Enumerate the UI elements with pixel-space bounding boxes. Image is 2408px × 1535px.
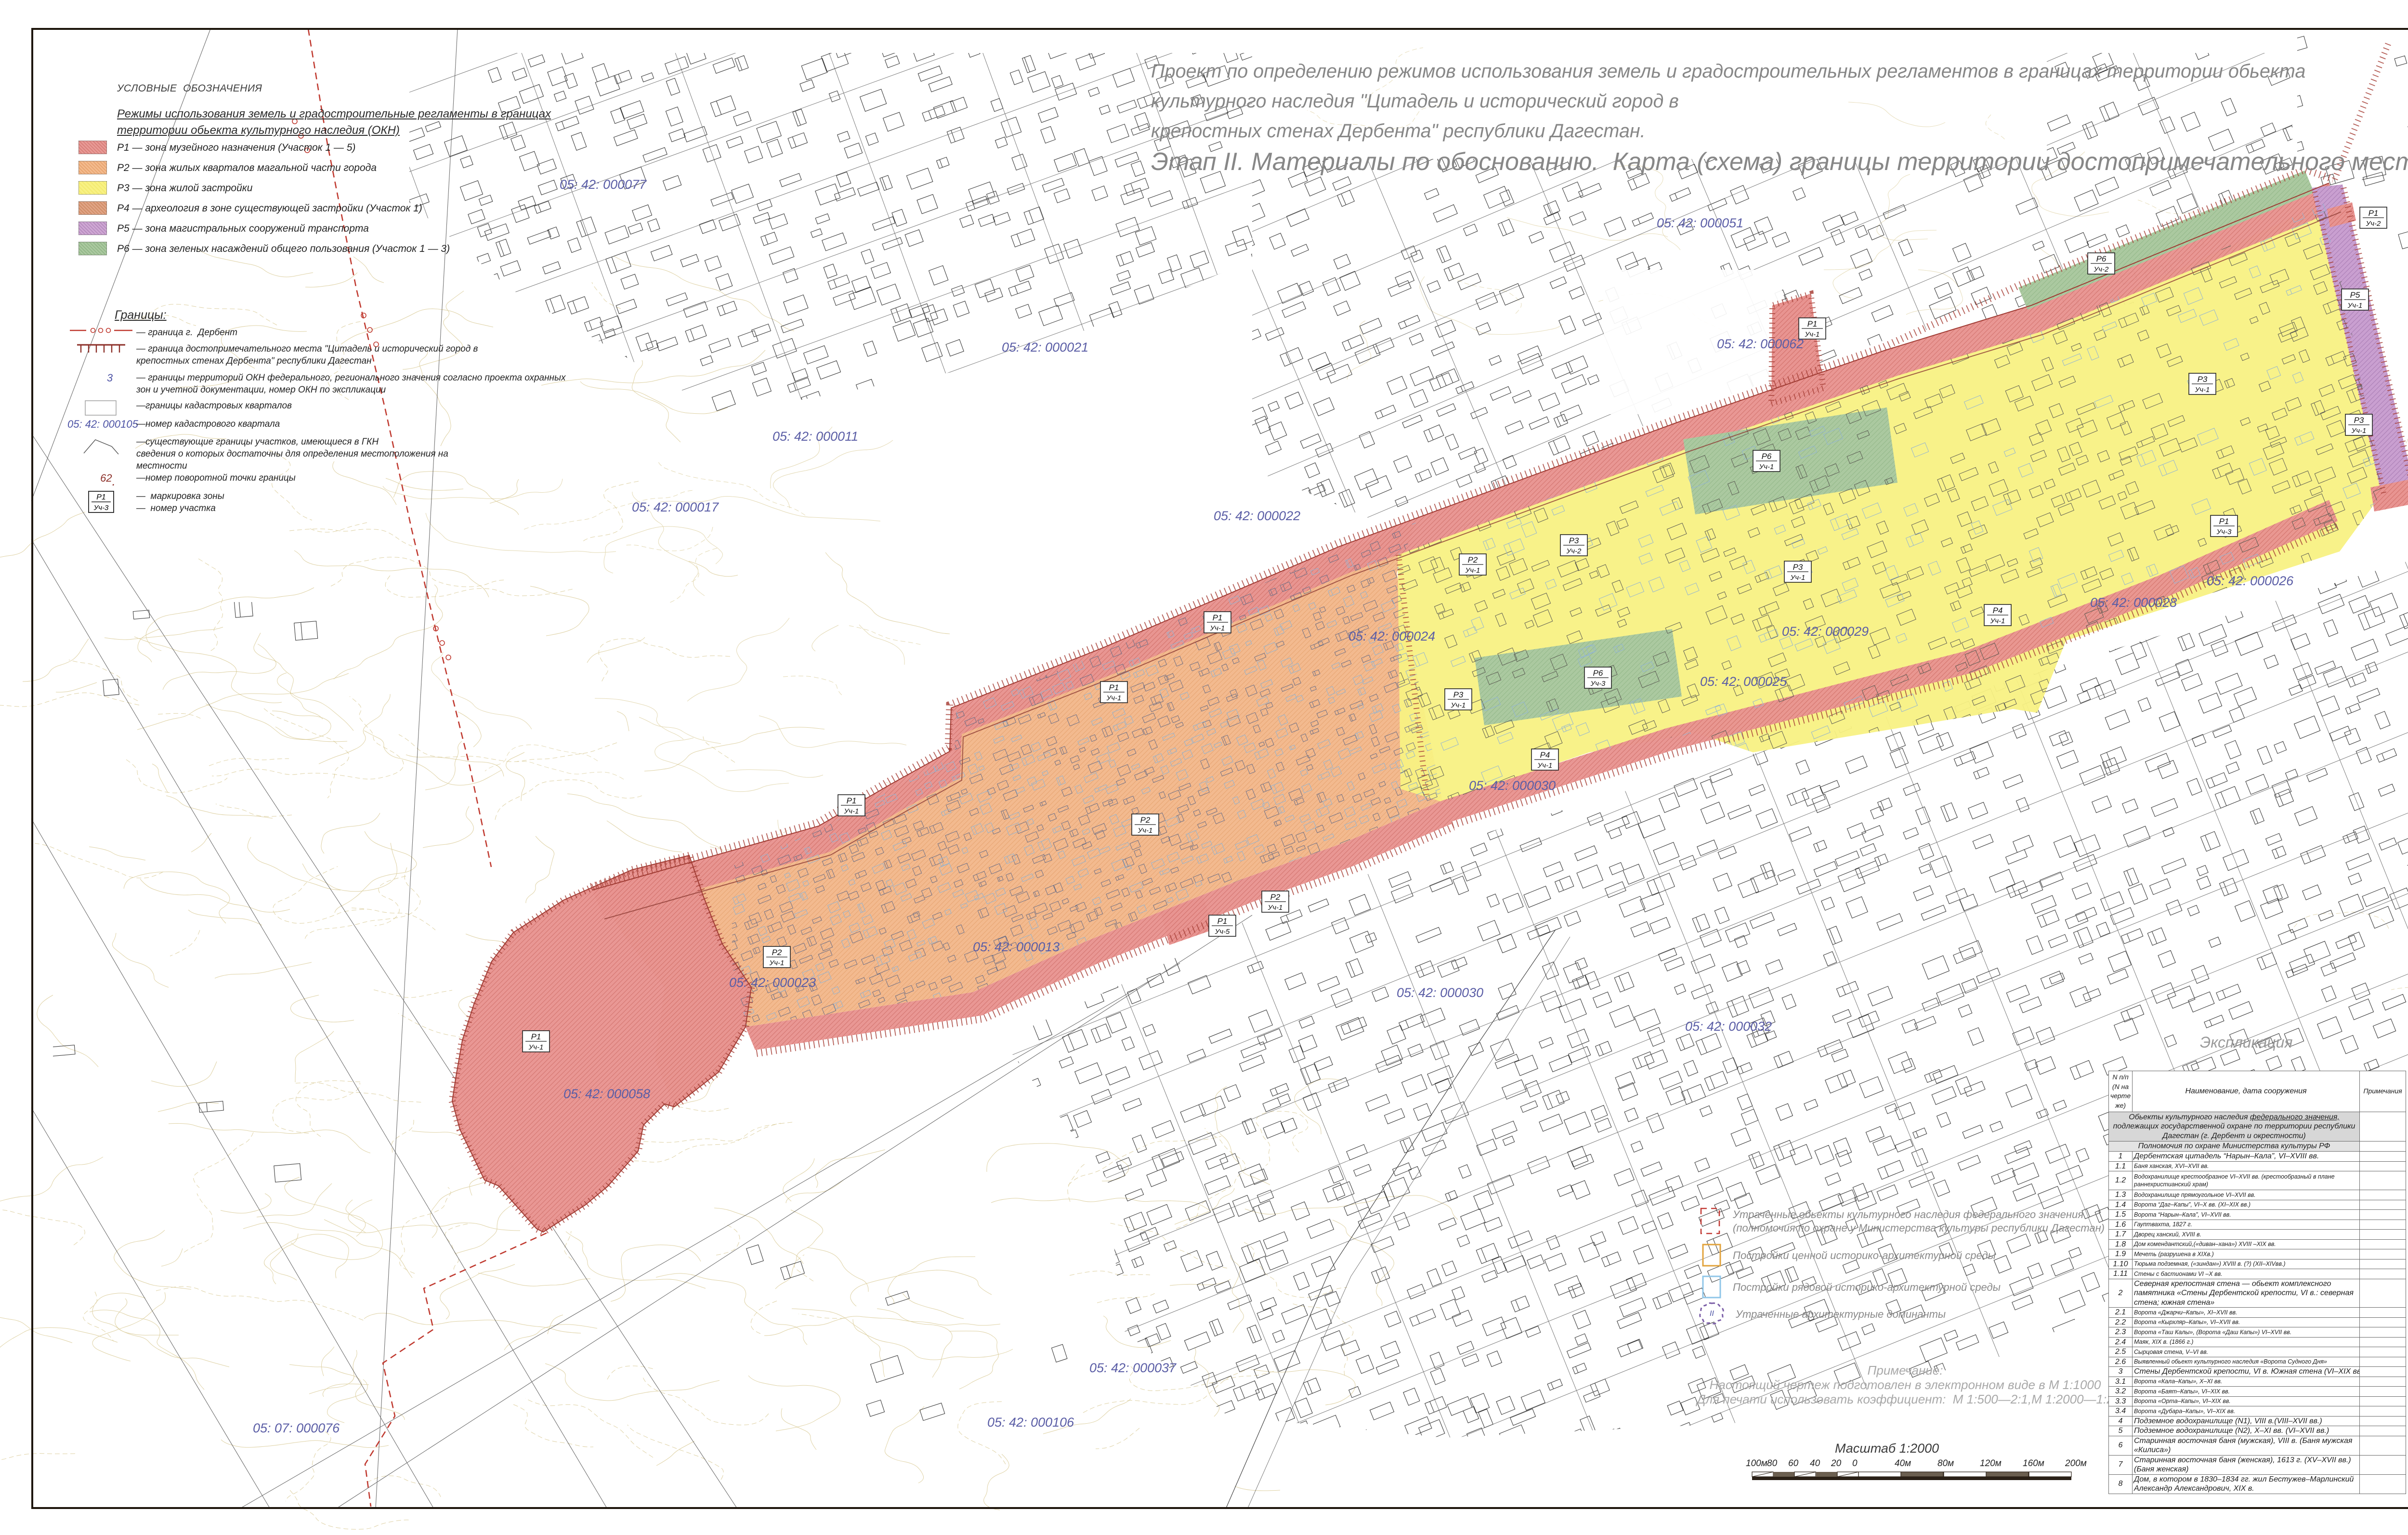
- svg-text:Уч-3: Уч-3: [93, 504, 109, 512]
- svg-text:Р1: Р1: [96, 493, 106, 501]
- svg-text:II: II: [1710, 1310, 1714, 1318]
